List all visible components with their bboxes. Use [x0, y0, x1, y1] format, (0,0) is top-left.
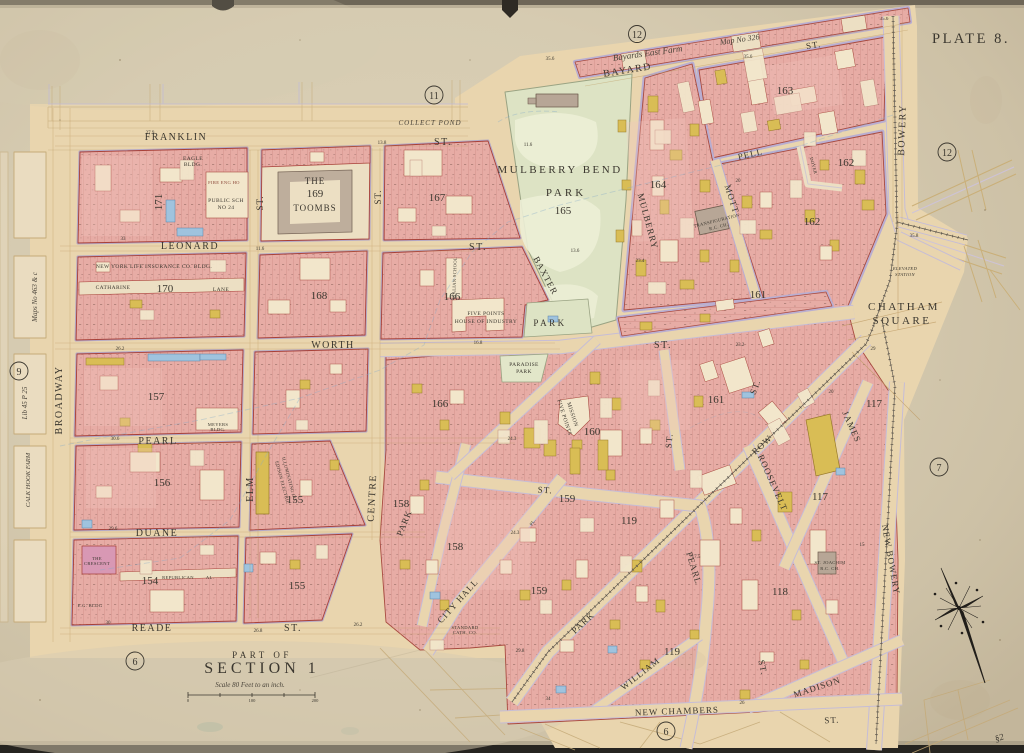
svg-text:ST.: ST. [284, 623, 302, 634]
svg-text:164: 164 [650, 179, 667, 191]
svg-text:23.4: 23.4 [636, 259, 645, 264]
svg-text:11: 11 [429, 91, 439, 102]
svg-text:9: 9 [17, 367, 22, 378]
svg-text:20: 20 [829, 390, 835, 395]
svg-text:159: 159 [531, 585, 548, 597]
svg-text:7: 7 [937, 463, 942, 474]
svg-text:35.6: 35.6 [546, 57, 555, 62]
svg-text:CALK HOOK FARM: CALK HOOK FARM [25, 452, 32, 507]
svg-text:15: 15 [860, 543, 866, 548]
svg-text:100: 100 [249, 698, 257, 703]
svg-text:34: 34 [546, 697, 552, 702]
svg-text:29.6: 29.6 [109, 527, 118, 532]
svg-text:158: 158 [447, 541, 464, 553]
svg-text:THE: THE [305, 176, 326, 186]
svg-text:170: 170 [157, 283, 174, 295]
svg-text:166: 166 [432, 398, 449, 410]
svg-text:ELEVATED: ELEVATED [892, 266, 918, 271]
svg-text:ST. JOACHIM: ST. JOACHIM [814, 560, 845, 565]
svg-text:PUBLIC SCH: PUBLIC SCH [208, 198, 244, 204]
svg-text:119: 119 [621, 515, 638, 527]
svg-text:FIRE ENG HO: FIRE ENG HO [208, 180, 240, 185]
svg-text:STATION: STATION [895, 272, 915, 277]
svg-text:155: 155 [287, 494, 304, 506]
svg-text:ST.: ST. [663, 433, 674, 449]
svg-text:161: 161 [708, 394, 725, 406]
svg-text:35.6: 35.6 [744, 55, 753, 60]
svg-text:118: 118 [772, 586, 789, 598]
svg-text:12: 12 [632, 30, 642, 41]
svg-text:30: 30 [106, 621, 112, 626]
svg-text:R.C. CH.: R.C. CH. [820, 566, 840, 571]
svg-text:160: 160 [584, 426, 601, 438]
svg-text:BLDG.: BLDG. [210, 427, 225, 432]
svg-text:PART OF: PART OF [232, 650, 292, 660]
svg-text:ST.: ST. [469, 242, 487, 253]
svg-text:156: 156 [154, 477, 171, 489]
svg-text:117: 117 [812, 491, 829, 503]
svg-text:ELM: ELM [245, 476, 256, 502]
svg-text:158: 158 [393, 498, 410, 510]
svg-text:155: 155 [289, 580, 306, 592]
svg-text:ST.: ST. [434, 137, 452, 148]
svg-text:NO 24: NO 24 [218, 205, 235, 211]
svg-text:6: 6 [664, 727, 669, 738]
svg-text:HOUSE OF INDUSTRY: HOUSE OF INDUSTRY [455, 319, 517, 325]
svg-text:FIVE POINTS: FIVE POINTS [467, 311, 504, 317]
svg-text:13.6: 13.6 [571, 249, 580, 254]
svg-text:CATH. CO.: CATH. CO. [453, 630, 478, 635]
svg-text:157: 157 [148, 391, 165, 403]
svg-text:30.6: 30.6 [111, 437, 120, 442]
svg-text:26: 26 [740, 701, 746, 706]
svg-text:LEONARD: LEONARD [161, 241, 219, 252]
svg-text:WORTH: WORTH [311, 340, 355, 351]
svg-text:PARK: PARK [546, 187, 586, 199]
svg-text:CHATHAM: CHATHAM [868, 301, 940, 313]
svg-text:11.6: 11.6 [524, 143, 533, 148]
svg-text:ST.: ST. [255, 195, 265, 210]
svg-text:CRESCENT: CRESCENT [84, 561, 110, 566]
svg-text:161: 161 [750, 289, 767, 301]
svg-text:TOOMBS: TOOMBS [293, 203, 336, 213]
svg-text:167: 167 [429, 192, 446, 204]
svg-text:27.9: 27.9 [146, 131, 155, 136]
svg-text:33: 33 [121, 237, 127, 242]
svg-text:159: 159 [559, 493, 576, 505]
svg-text:35.6: 35.6 [880, 17, 889, 22]
svg-text:PARADISE: PARADISE [509, 362, 539, 368]
svg-text:35.8: 35.8 [910, 234, 919, 239]
svg-text:BOWERY: BOWERY [896, 104, 909, 156]
svg-text:BLDG.: BLDG. [184, 162, 203, 168]
svg-text:26.2: 26.2 [116, 347, 125, 352]
svg-text:13.8: 13.8 [378, 141, 387, 146]
svg-text:6: 6 [133, 657, 138, 668]
svg-text:169: 169 [307, 188, 324, 200]
svg-text:ST.: ST. [654, 340, 672, 351]
svg-text:PLATE 8.: PLATE 8. [932, 31, 1010, 47]
svg-text:PEARL: PEARL [138, 436, 177, 447]
svg-text:29.8: 29.8 [516, 649, 525, 654]
svg-text:165: 165 [555, 205, 572, 217]
svg-text:117: 117 [866, 398, 883, 410]
svg-text:PARK: PARK [533, 318, 566, 328]
svg-text:26.8: 26.8 [254, 629, 263, 634]
svg-text:24.3: 24.3 [511, 531, 520, 536]
svg-text:ST.: ST. [824, 715, 840, 726]
svg-text:ST.: ST. [537, 484, 553, 495]
svg-text:11.6: 11.6 [256, 247, 265, 252]
svg-text:AL.: AL. [206, 575, 214, 580]
svg-text:ST.: ST. [373, 189, 383, 204]
svg-text:162: 162 [838, 157, 855, 169]
svg-text:20: 20 [736, 179, 742, 184]
svg-text:166: 166 [444, 291, 461, 303]
svg-text:200: 200 [312, 698, 320, 703]
svg-text:12: 12 [942, 148, 952, 159]
svg-text:168: 168 [311, 290, 328, 302]
svg-text:E.G. BLDG: E.G. BLDG [78, 603, 103, 608]
svg-text:COLLECT POND: COLLECT POND [398, 119, 461, 127]
svg-text:LANE: LANE [213, 287, 230, 293]
svg-text:MULBERRY BEND: MULBERRY BEND [497, 164, 622, 176]
svg-text:DUANE: DUANE [136, 528, 179, 539]
svg-text:Lib 45 P 25: Lib 45 P 25 [21, 386, 29, 420]
svg-text:REPUBLICAN: REPUBLICAN [162, 575, 194, 580]
svg-text:163: 163 [777, 85, 794, 97]
svg-text:Scale 80 Feet to an inch.: Scale 80 Feet to an inch. [215, 681, 285, 689]
svg-text:CATHARINE: CATHARINE [96, 285, 131, 291]
svg-text:171: 171 [153, 194, 165, 211]
svg-text:SQUARE: SQUARE [872, 315, 931, 327]
svg-text:154: 154 [142, 575, 159, 587]
svg-text:READE: READE [132, 623, 173, 634]
svg-text:PARK: PARK [516, 369, 532, 375]
svg-text:NEW YORK LIFE INSURANCE CO. BL: NEW YORK LIFE INSURANCE CO. BLDG. [96, 264, 213, 270]
svg-text:26.2: 26.2 [354, 623, 363, 628]
svg-text:16.8: 16.8 [474, 341, 483, 346]
svg-text:23.2: 23.2 [736, 343, 745, 348]
svg-text:Maps No 463 & c: Maps No 463 & c [31, 271, 39, 323]
svg-text:162: 162 [804, 216, 821, 228]
svg-text:29: 29 [871, 347, 877, 352]
svg-text:17.5: 17.5 [692, 555, 701, 560]
svg-text:24.3: 24.3 [508, 437, 517, 442]
svg-text:BROADWAY: BROADWAY [54, 366, 65, 435]
svg-text:SECTION 1: SECTION 1 [204, 660, 320, 677]
